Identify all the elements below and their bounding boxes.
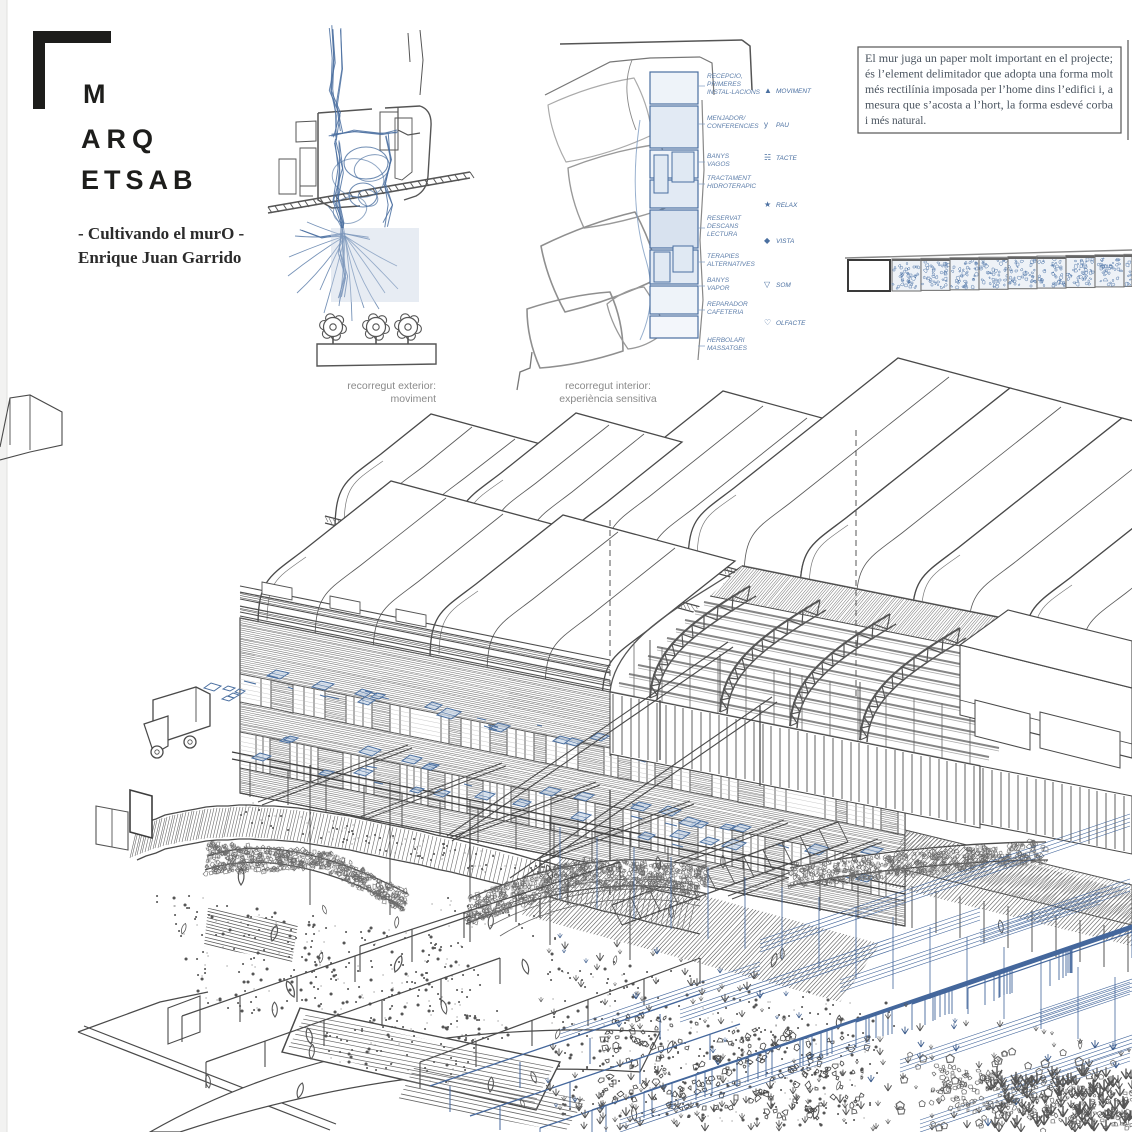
svg-text:RECEPCIO,: RECEPCIO, (707, 73, 743, 80)
svg-text:▲: ▲ (764, 86, 772, 95)
svg-text:OLFACTE: OLFACTE (776, 320, 806, 327)
svg-text:BANYS: BANYS (707, 153, 730, 160)
svg-text:ARQ: ARQ (81, 124, 159, 154)
svg-text:RELAX: RELAX (776, 202, 798, 209)
svg-text:mesura que s’acosta a l’hort,: mesura que s’acosta a l’hort, la forma e… (865, 100, 1113, 112)
svg-text:☵: ☵ (764, 153, 771, 162)
svg-text:INSTAL-LACIONS: INSTAL-LACIONS (707, 89, 761, 96)
svg-text:Enrique Juan Garrido: Enrique Juan Garrido (78, 248, 241, 267)
svg-text:REPARADOR: REPARADOR (707, 301, 748, 308)
svg-text:▽: ▽ (764, 280, 771, 289)
svg-text:SOM: SOM (776, 282, 791, 289)
svg-text:TRACTAMENT: TRACTAMENT (707, 175, 752, 182)
svg-text:LECTURA: LECTURA (707, 231, 737, 238)
svg-text:experiència sensitiva: experiència sensitiva (559, 393, 657, 405)
svg-text:HERBOLARI: HERBOLARI (707, 337, 745, 344)
svg-text:y: y (764, 120, 768, 129)
svg-text:M: M (83, 79, 112, 109)
svg-text:i més natural.: i més natural. (865, 115, 926, 127)
svg-text:- Cultivando el murO -: - Cultivando el murO - (78, 224, 245, 243)
svg-text:més rectilínia imposada per l’: més rectilínia imposada per l’home dins … (865, 84, 1113, 96)
svg-text:ALTERNATIVES: ALTERNATIVES (706, 261, 755, 268)
svg-text:BANYS: BANYS (707, 277, 730, 284)
svg-text:El mur juga un paper molt impo: El mur juga un paper molt important en e… (865, 53, 1113, 65)
svg-text:HIDROTERAPIC: HIDROTERAPIC (707, 183, 756, 190)
svg-text:★: ★ (764, 200, 771, 209)
svg-text:VAPOR: VAPOR (707, 285, 730, 292)
svg-text:recorregut interior:: recorregut interior: (565, 380, 651, 392)
svg-text:CONFERENCIES: CONFERENCIES (707, 123, 759, 130)
svg-text:és l’element delimitador que a: és l’element delimitador que adopta una … (865, 69, 1114, 81)
svg-text:TERAPIES: TERAPIES (707, 253, 740, 260)
svg-text:moviment: moviment (390, 393, 436, 405)
svg-text:VAGOS: VAGOS (707, 161, 730, 168)
svg-text:DESCANS: DESCANS (707, 223, 739, 230)
svg-text:♡: ♡ (764, 318, 771, 327)
svg-text:recorregut exterior:: recorregut exterior: (347, 380, 436, 392)
svg-text:VISTA: VISTA (776, 238, 794, 245)
svg-text:PAU: PAU (776, 122, 789, 129)
svg-text:PRIMERES: PRIMERES (707, 81, 742, 88)
svg-text:CAFETERIA: CAFETERIA (707, 309, 743, 316)
svg-text:TACTE: TACTE (776, 155, 797, 162)
svg-text:ETSAB: ETSAB (81, 165, 198, 195)
svg-text:MOVIMENT: MOVIMENT (776, 88, 812, 95)
svg-text:MENJADOR/: MENJADOR/ (707, 115, 746, 122)
svg-text:◆: ◆ (764, 236, 771, 245)
svg-text:RESERVAT: RESERVAT (707, 215, 742, 222)
svg-text:MASSATGES: MASSATGES (707, 345, 748, 352)
